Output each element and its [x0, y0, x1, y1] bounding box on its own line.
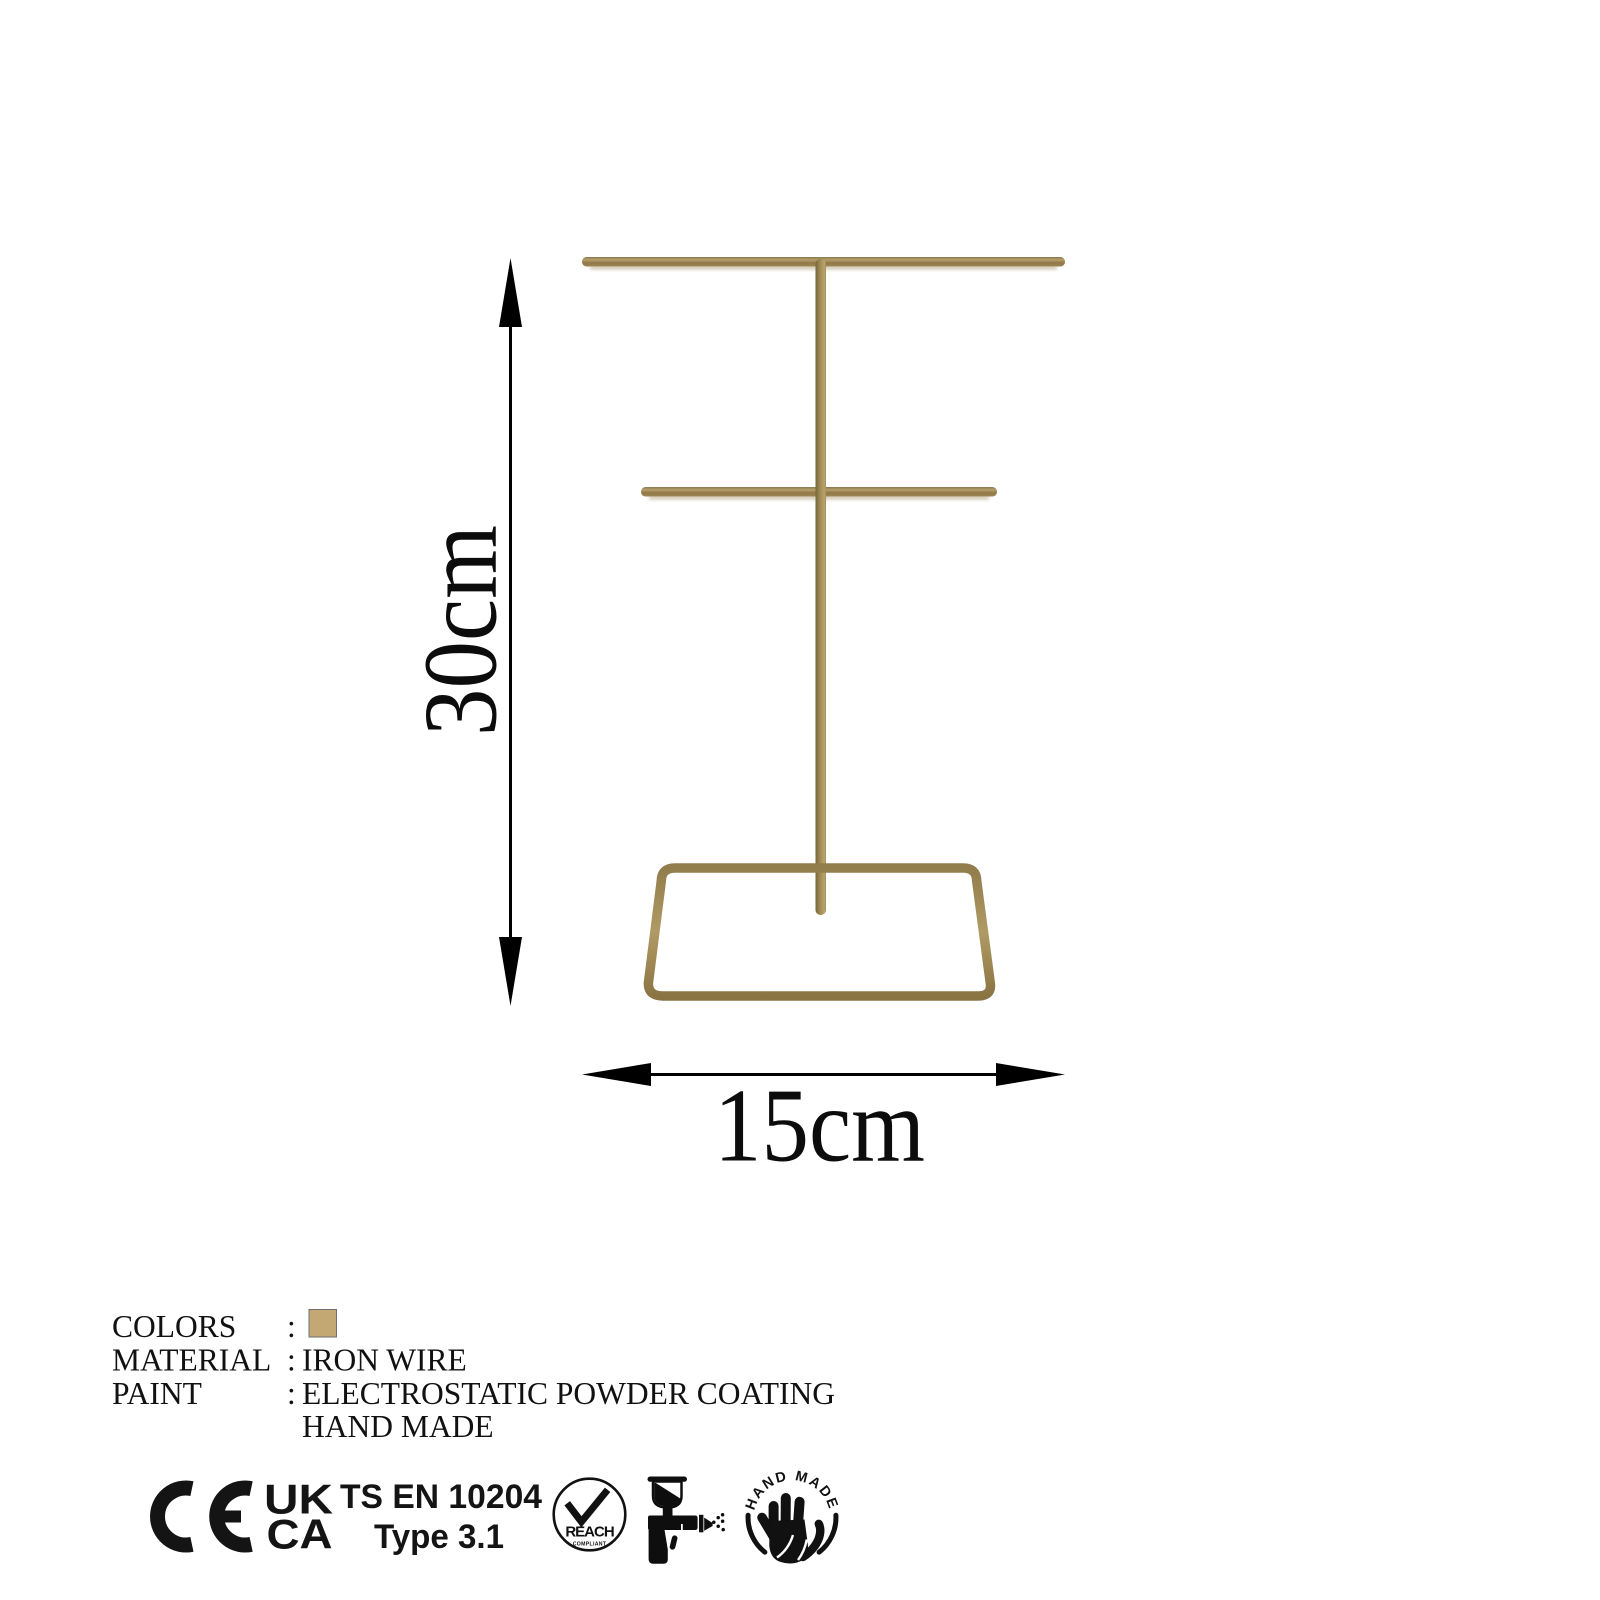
svg-text:ELECTROSTATIC POWDER COATING: ELECTROSTATIC POWDER COATING	[302, 1376, 835, 1411]
svg-text:REACH: REACH	[565, 1524, 614, 1541]
svg-text:COMPLIANT: COMPLIANT	[573, 1541, 607, 1547]
svg-text:MATERIAL: MATERIAL	[112, 1343, 271, 1378]
svg-text:15cm: 15cm	[714, 1067, 925, 1184]
svg-text::: :	[287, 1343, 296, 1378]
svg-text:HAND MADE: HAND MADE	[302, 1409, 494, 1444]
svg-text:Type 3.1: Type 3.1	[374, 1518, 504, 1556]
svg-text:COLORS: COLORS	[112, 1309, 236, 1344]
svg-text:IRON WIRE: IRON WIRE	[302, 1343, 467, 1378]
svg-text:PAINT: PAINT	[112, 1376, 202, 1411]
svg-text:TS EN 10204: TS EN 10204	[340, 1478, 542, 1516]
svg-text::: :	[287, 1376, 296, 1411]
svg-text:30cm: 30cm	[402, 525, 519, 736]
svg-text::: :	[287, 1309, 296, 1344]
svg-text:CA: CA	[267, 1511, 333, 1558]
svg-text:HAND MADE: HAND MADE	[743, 1468, 842, 1512]
